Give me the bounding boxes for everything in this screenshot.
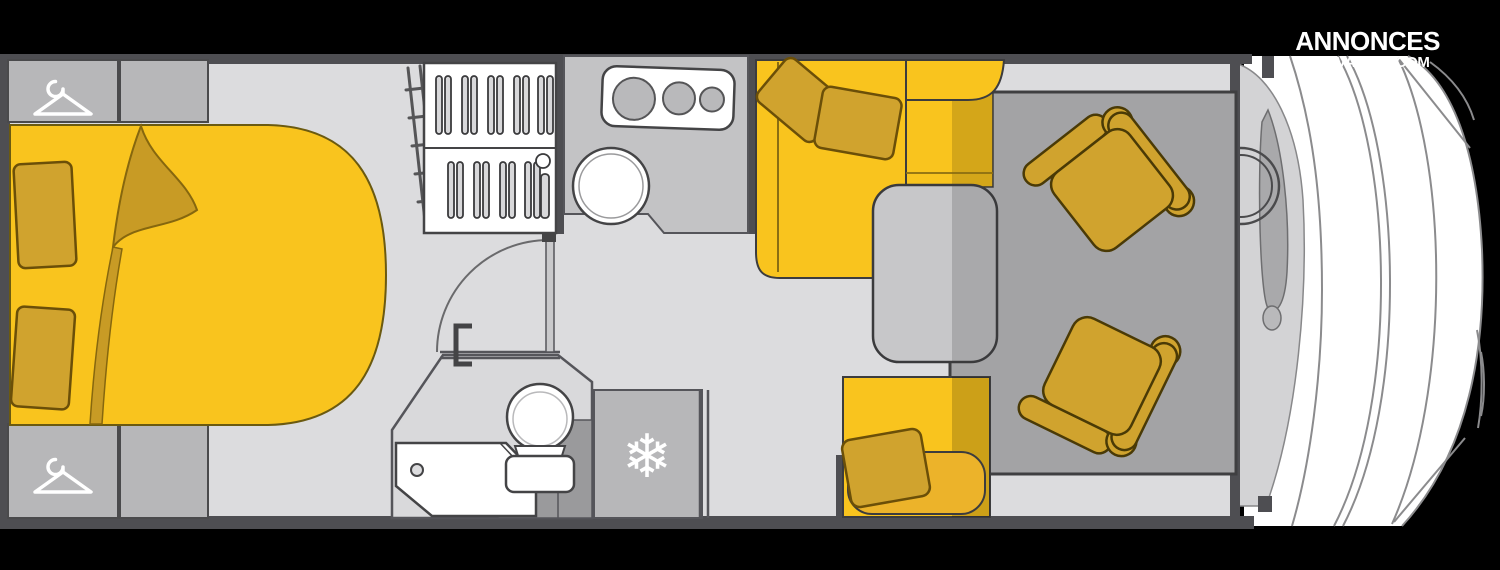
burner [662, 82, 695, 115]
shower-drain [411, 464, 423, 476]
stove [601, 66, 735, 131]
floorplan-canvas: ❄ [0, 0, 1500, 570]
cabinet-bottom [120, 424, 208, 518]
pillow [13, 162, 76, 269]
burner [612, 77, 655, 120]
bench-partition [836, 455, 842, 517]
logo-line2: CARAVANING.COM [1295, 55, 1440, 70]
kitchen [564, 56, 748, 233]
cab-wall-stub-bottom [1258, 496, 1272, 512]
sink [573, 148, 649, 224]
door-hinge [542, 234, 556, 242]
pillow [11, 306, 76, 410]
snowflake-icon: ❄ [622, 423, 672, 490]
toilet-tank [506, 456, 574, 492]
cabinet-top [120, 60, 208, 122]
pillow [841, 428, 932, 509]
cab-wall-stub-top [1262, 56, 1274, 78]
logo-line1: ANNONCES [1295, 28, 1440, 54]
fridge: ❄ [594, 390, 708, 518]
site-logo: ANNONCES CARAVANING.COM [1295, 28, 1440, 70]
toilet [506, 384, 574, 492]
dinette-partition-wall [748, 56, 756, 234]
motorhome-floorplan-image: ❄ ANNONCES C [0, 0, 1500, 570]
cab-front [1203, 56, 1484, 526]
shelf-knob [536, 154, 550, 168]
pillow [813, 86, 903, 161]
dinette-back-cushion [906, 60, 1004, 100]
dinette-table [873, 185, 997, 362]
gear-knob [1263, 306, 1281, 330]
toilet-bowl [507, 384, 573, 450]
burner [700, 87, 725, 112]
mid-wardrobe-unit [406, 63, 556, 233]
door-leaf [546, 240, 554, 352]
